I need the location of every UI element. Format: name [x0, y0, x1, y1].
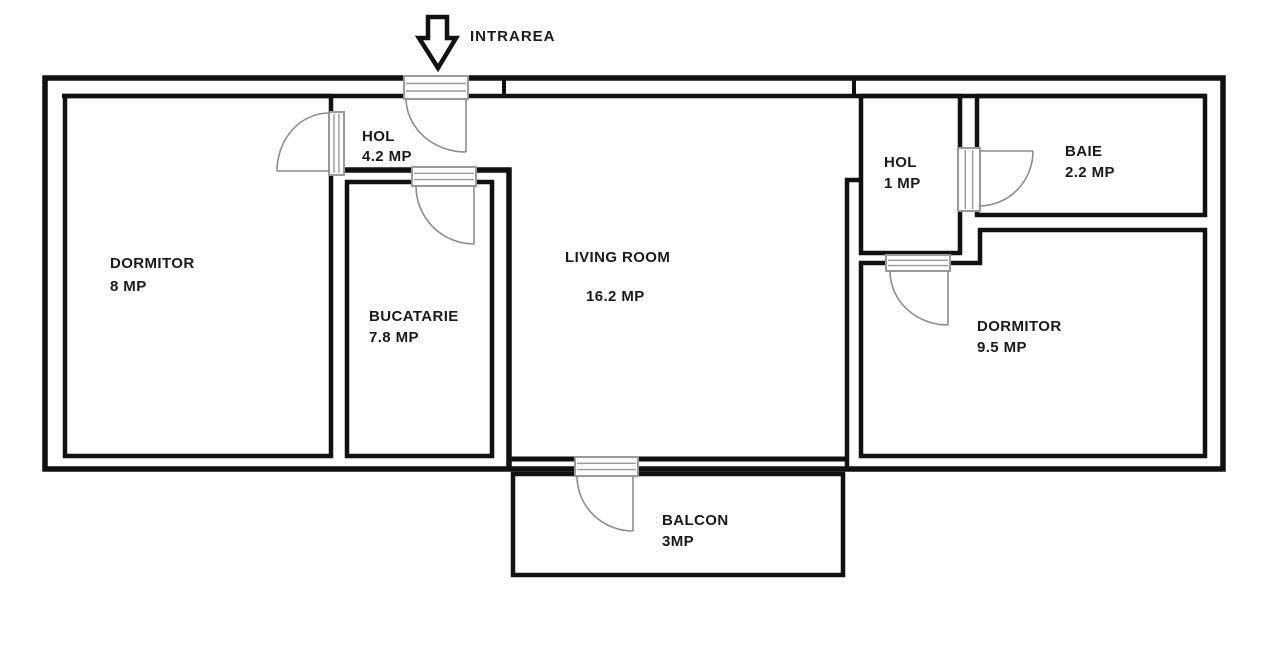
outer-wall	[45, 78, 1223, 469]
floor-plan-svg: INTRAREA DORMITOR 8 MP HOL 4.2 MP BUCATA…	[0, 0, 1270, 672]
balcon-label: BALCON 3MP	[662, 512, 729, 550]
room-area: 2.2 MP	[1065, 164, 1115, 181]
room-area: 3MP	[662, 533, 694, 550]
room-name: BAIE	[1065, 143, 1102, 160]
room-area: 8 MP	[110, 278, 147, 295]
balcon-door-swing	[577, 476, 633, 531]
dormitor-right-door-frame	[886, 255, 950, 271]
room-area: 16.2 MP	[586, 288, 645, 305]
room-name: LIVING ROOM	[565, 249, 670, 266]
entrance-arrow-icon	[419, 17, 456, 68]
floor-plan: INTRAREA DORMITOR 8 MP HOL 4.2 MP BUCATA…	[0, 0, 1270, 672]
room-name: DORMITOR	[977, 318, 1062, 335]
room-name: HOL	[362, 128, 395, 145]
entrance-label: INTRAREA	[470, 28, 556, 45]
entrance-door-frame	[404, 76, 468, 99]
balcon-door-frame	[575, 457, 638, 476]
room-area: 9.5 MP	[977, 339, 1027, 356]
dormitor-left-door-frame	[329, 112, 344, 175]
room-name: BUCATARIE	[369, 308, 459, 325]
room-name: HOL	[884, 154, 917, 171]
room-name: BALCON	[662, 512, 729, 529]
baie-door-frame	[958, 148, 980, 211]
bucatarie-door-frame	[412, 167, 476, 186]
room-area: 1 MP	[884, 175, 921, 192]
room-area: 7.8 MP	[369, 329, 419, 346]
room-name: DORMITOR	[110, 255, 195, 272]
room-area: 4.2 MP	[362, 148, 412, 165]
